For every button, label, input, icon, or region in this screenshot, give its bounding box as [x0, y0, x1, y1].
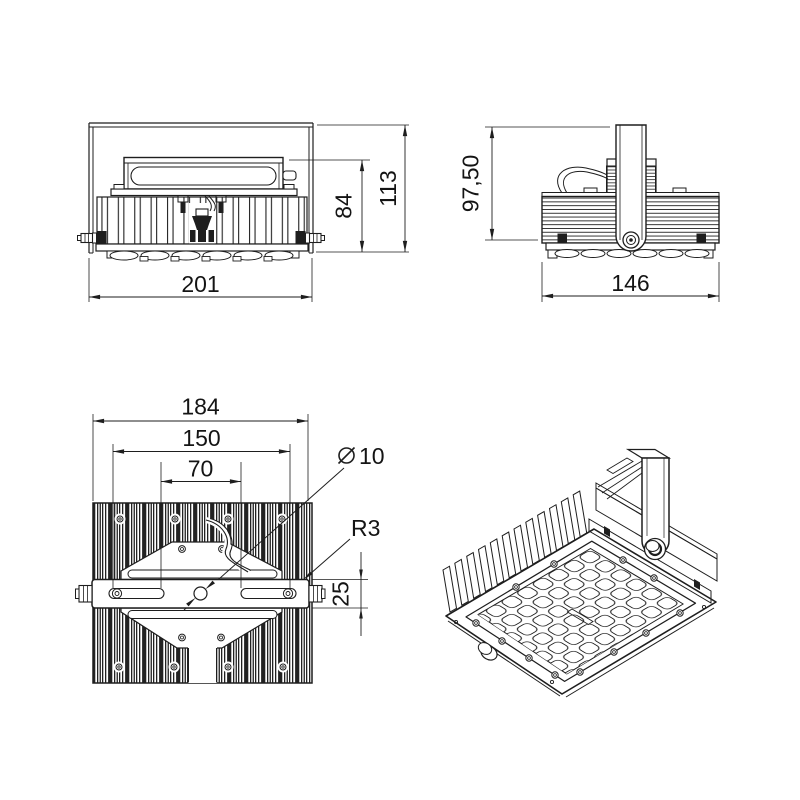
dim-top-bracket-length-label: 184	[181, 394, 220, 420]
dim-side-depth: 146	[542, 262, 719, 302]
dim-side-depth-label: 146	[611, 270, 649, 296]
dim-front-body-height-label: 84	[331, 193, 357, 219]
bar-end-bolt-right	[309, 586, 325, 603]
dim-front-total-height: 113	[316, 125, 409, 252]
top-view: 184 150 70 10 R3 25	[76, 394, 385, 684]
diameter-symbol-icon	[339, 448, 355, 464]
drawing-svg: 201 84 113	[0, 0, 800, 800]
front-driver-box	[124, 158, 296, 190]
side-mounting-arm	[616, 125, 646, 251]
dim-front-total-height-label: 113	[375, 170, 401, 207]
dim-top-slot-span-label: 150	[182, 425, 220, 451]
center-mounting-hole	[194, 587, 207, 600]
technical-drawing-sheet: 201 84 113	[0, 0, 800, 800]
dim-top-slot-inner-span-label: 70	[188, 456, 214, 482]
dim-hole-diameter-label: 10	[359, 443, 385, 469]
dim-bracket-width-label: 25	[328, 581, 354, 607]
dim-front-width: 201	[89, 258, 312, 302]
isometric-view	[443, 450, 717, 701]
front-lens-bottom	[96, 244, 308, 261]
bar-end-bolt-left	[76, 586, 93, 603]
dim-hole-diameter: 10	[339, 443, 385, 469]
dim-side-height-label: 97,50	[458, 155, 484, 213]
front-view: 201 84 113	[78, 123, 410, 302]
front-side-bolt-left	[78, 231, 107, 245]
front-side-bolt-right	[296, 231, 325, 245]
side-cable-loop	[558, 167, 608, 193]
dim-corner-radius: R3	[304, 515, 381, 580]
side-view: 97,50 146	[458, 125, 720, 302]
dim-corner-radius-label: R3	[351, 515, 380, 541]
dim-front-width-label: 201	[181, 271, 219, 297]
